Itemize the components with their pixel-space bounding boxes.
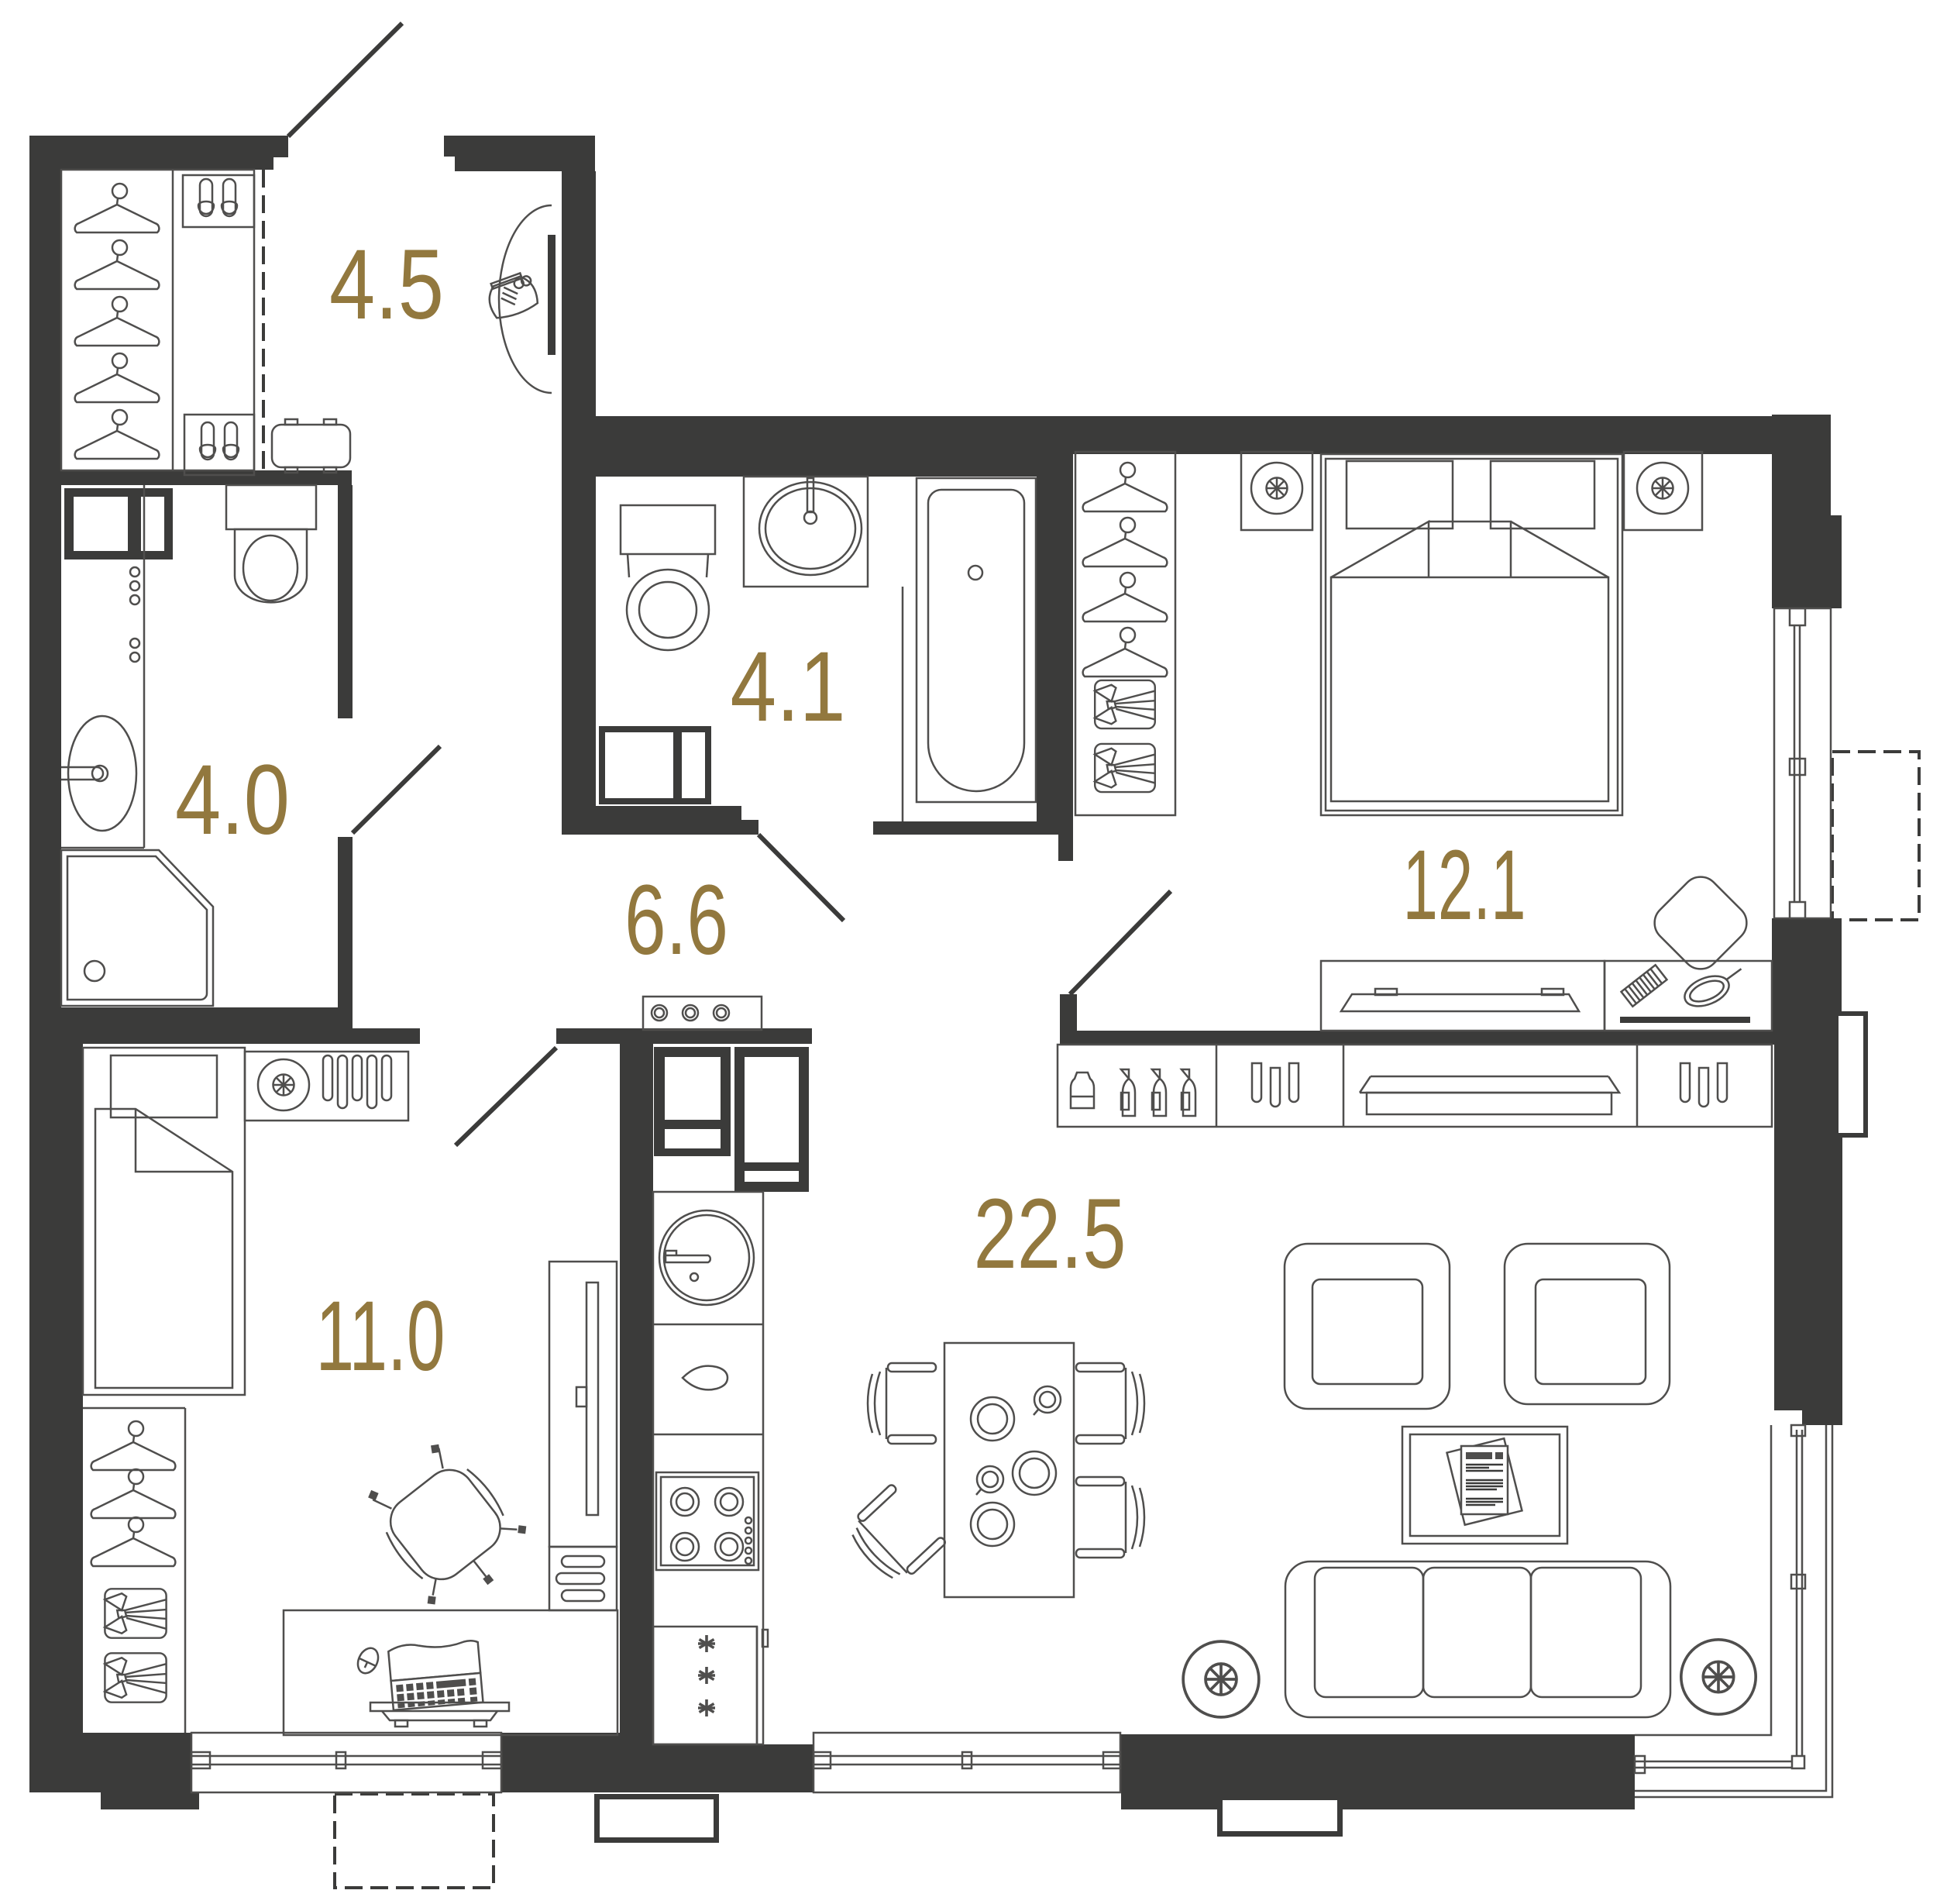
svg-text:22.5: 22.5 (974, 1179, 1127, 1289)
svg-text:11.0: 11.0 (316, 1281, 445, 1392)
svg-text:12.1: 12.1 (1403, 830, 1526, 941)
svg-text:6.6: 6.6 (624, 865, 728, 976)
svg-text:4.0: 4.0 (175, 745, 290, 856)
svg-text:4.1: 4.1 (731, 632, 846, 742)
svg-text:4.5: 4.5 (329, 229, 444, 340)
